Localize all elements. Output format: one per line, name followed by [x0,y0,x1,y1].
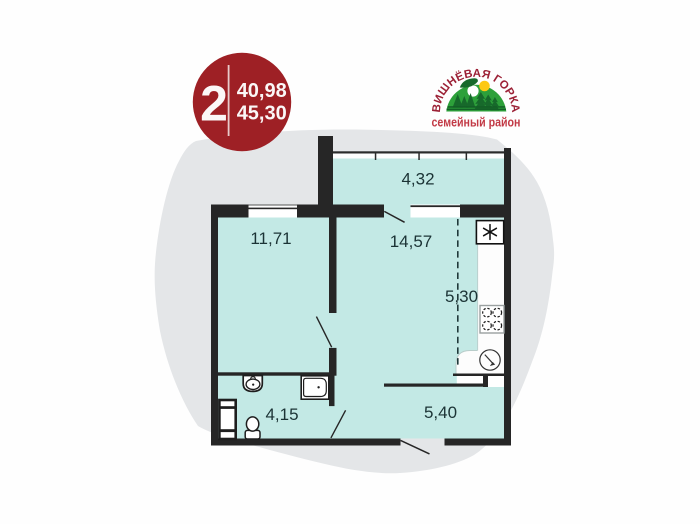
svg-text:5,30: 5,30 [445,287,478,306]
svg-text:40,98: 40,98 [237,80,287,102]
svg-text:4,15: 4,15 [265,405,298,424]
svg-text:семейный район: семейный район [432,115,521,130]
svg-text:2: 2 [200,76,228,132]
svg-text:45,30: 45,30 [237,103,287,125]
svg-text:5,40: 5,40 [424,403,457,422]
svg-text:4,32: 4,32 [401,170,434,189]
svg-text:11,71: 11,71 [250,229,291,248]
svg-text:14,57: 14,57 [390,232,433,251]
